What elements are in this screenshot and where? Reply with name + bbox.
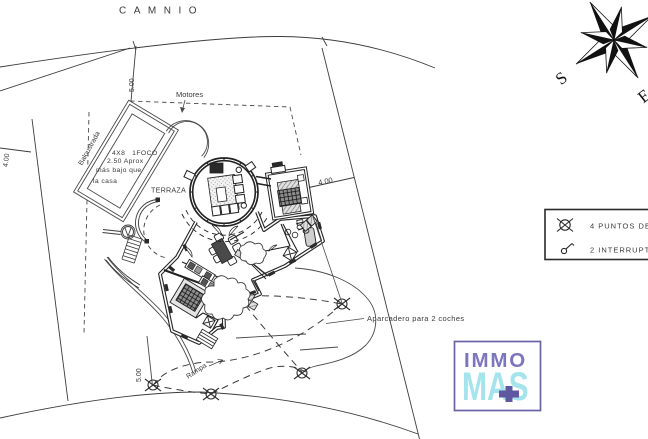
svg-text:CAMNIO: CAMNIO <box>119 6 204 17</box>
svg-text:S: S <box>552 68 571 89</box>
svg-text:Rampa: Rampa <box>185 362 208 380</box>
svg-text:4 PUNTOS DE L: 4 PUNTOS DE L <box>590 222 648 231</box>
svg-text:2 INTERRUPTOR: 2 INTERRUPTOR <box>590 246 648 255</box>
svg-text:2.50 Aprox: 2.50 Aprox <box>107 158 144 165</box>
svg-text:4.00: 4.00 <box>3 153 12 167</box>
svg-text:Motores: Motores <box>176 90 203 99</box>
svg-text:más bajo que: más bajo que <box>96 167 142 174</box>
svg-text:E: E <box>634 85 648 106</box>
svg-text:4X8 1FOCO: 4X8 1FOCO <box>112 150 158 157</box>
svg-text:MAS: MAS <box>462 365 529 409</box>
svg-text:la casa: la casa <box>93 178 117 185</box>
svg-text:5.00: 5.00 <box>136 368 143 382</box>
svg-text:TERRAZA: TERRAZA <box>151 186 186 195</box>
svg-text:Aparcadero para 2 coches: Aparcadero para 2 coches <box>367 314 465 323</box>
svg-text:4.00: 4.00 <box>317 175 333 187</box>
svg-text:5.00: 5.00 <box>129 78 136 92</box>
